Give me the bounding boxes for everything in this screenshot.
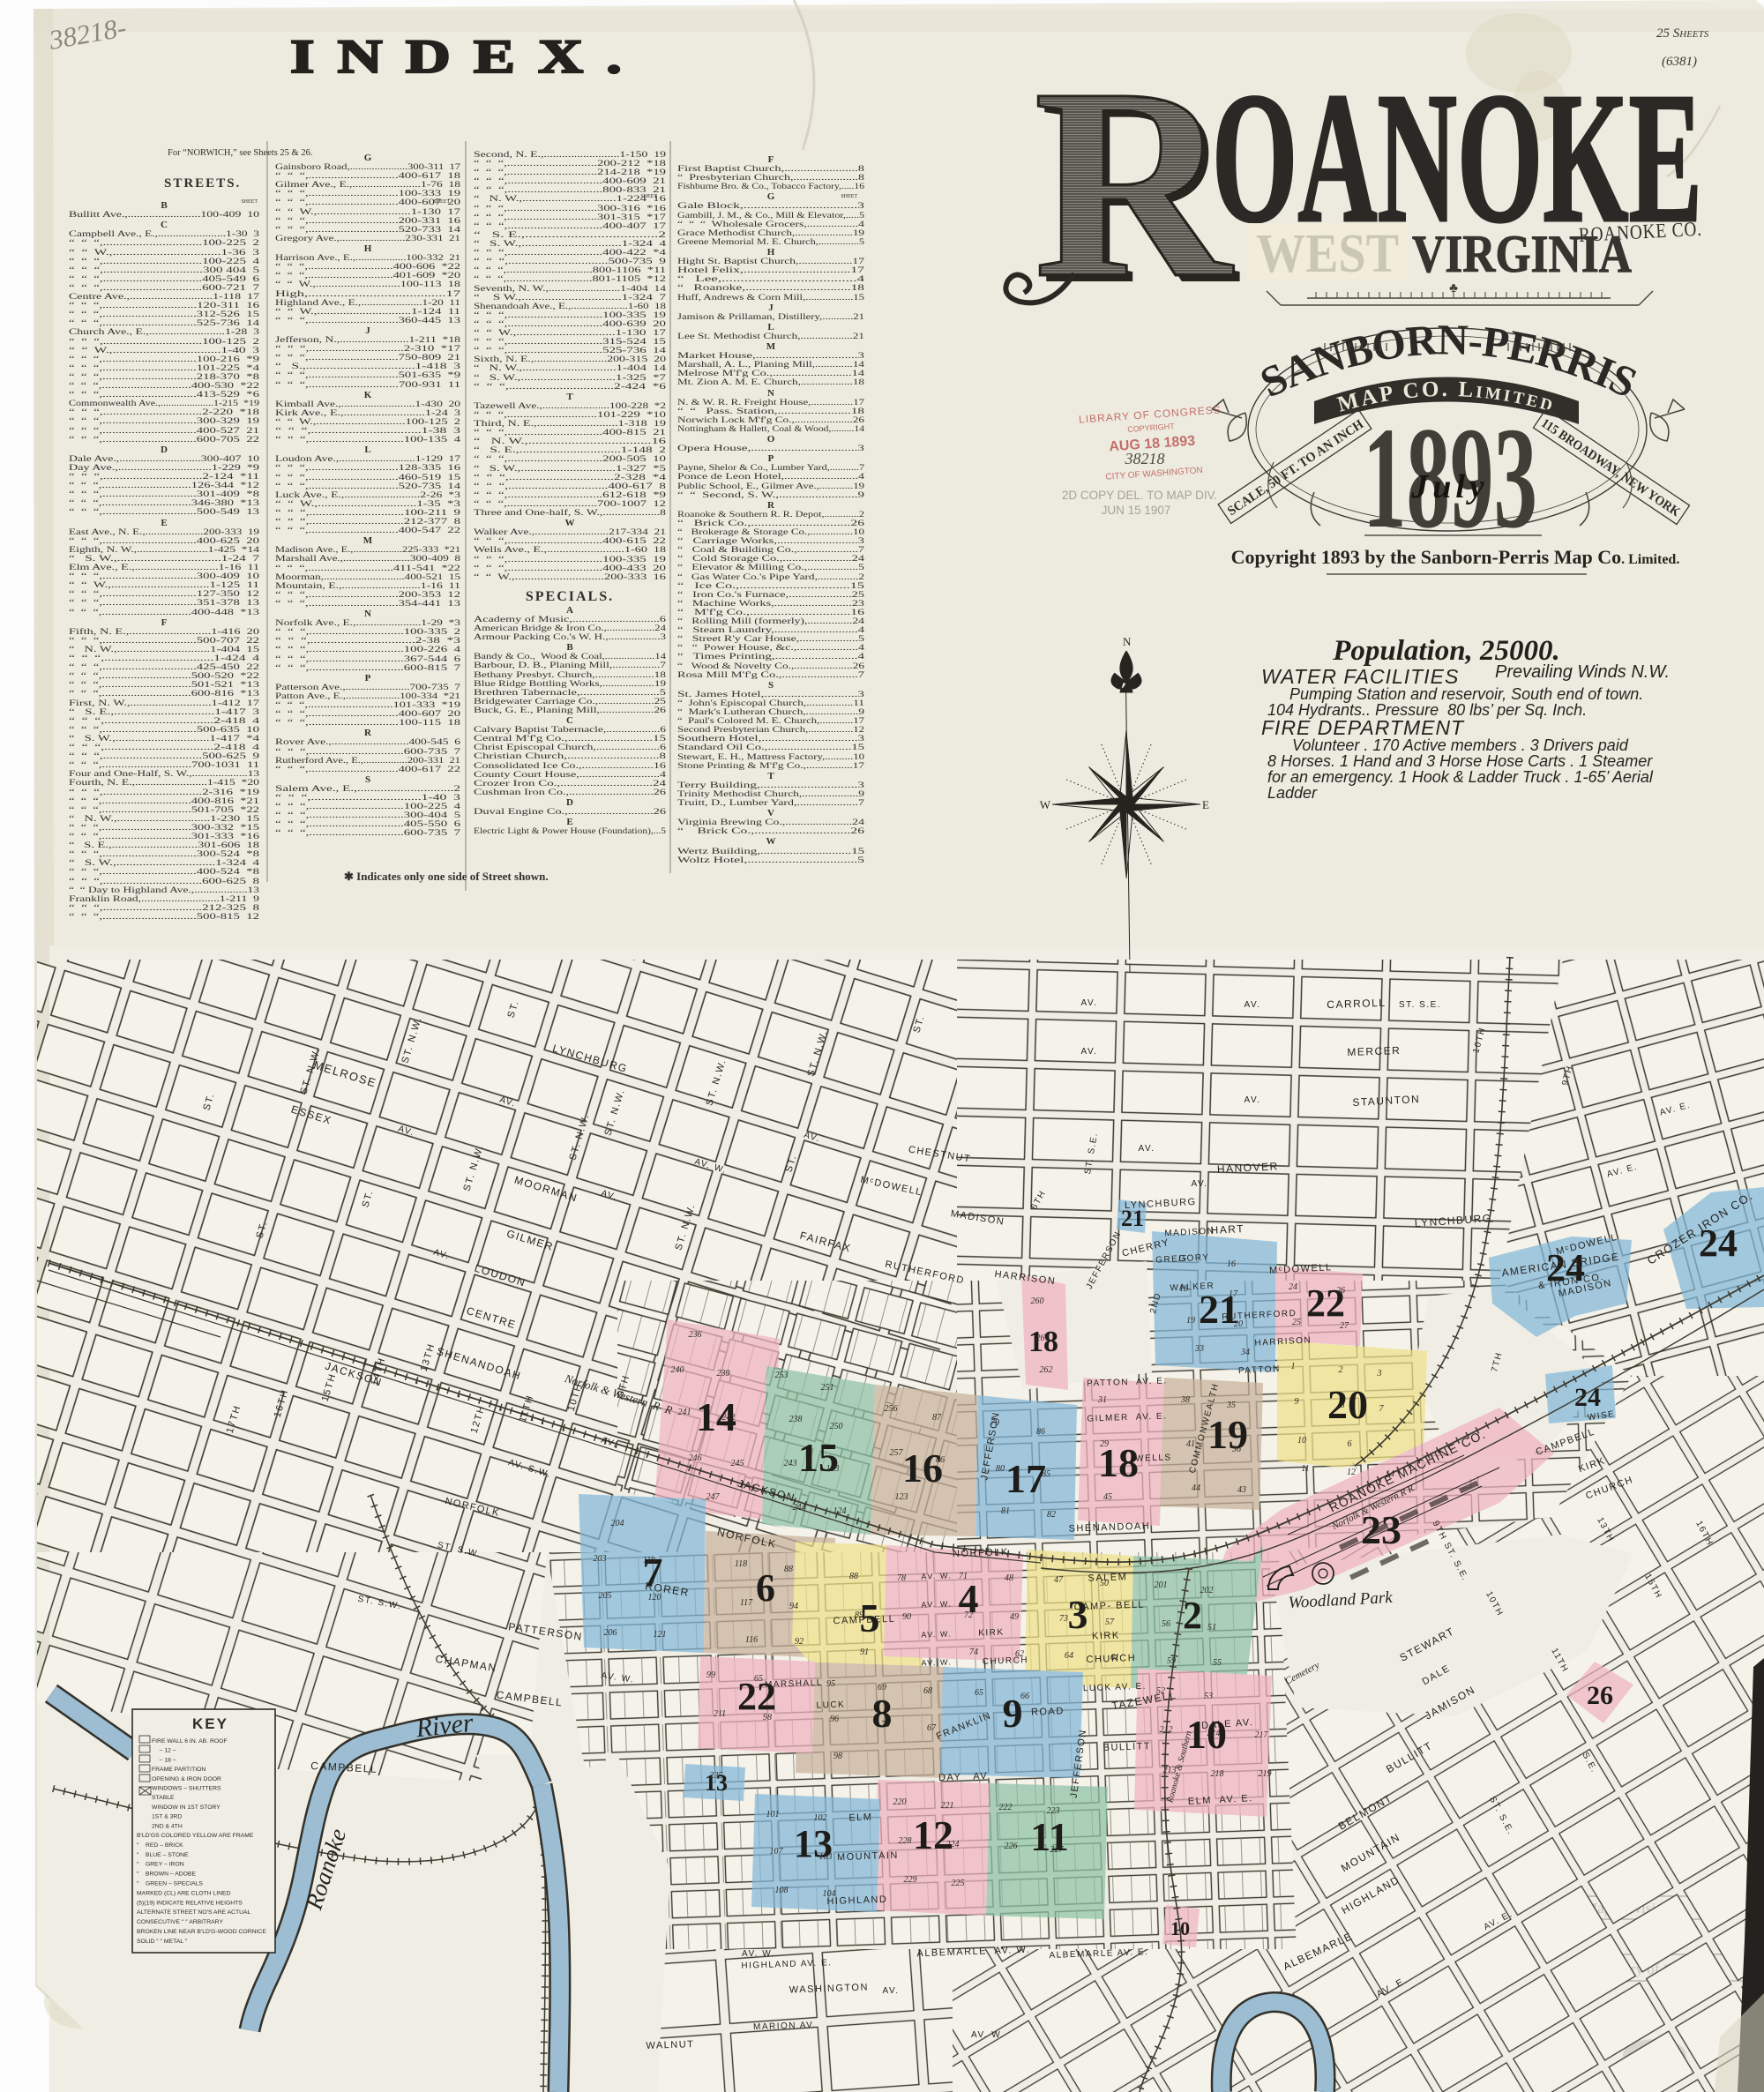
svg-text:256: 256 xyxy=(885,1404,898,1414)
svg-text:94: 94 xyxy=(789,1602,798,1611)
svg-text:“ “ “,......................: “ “ “,............................501-63… xyxy=(275,370,460,380)
svg-text:Nottingham & Hallett, Coal & W: Nottingham & Hallett, Coal & Wood,......… xyxy=(677,424,864,434)
svg-text:Stone Printing & M'f'g Co.,...: Stone Printing & M'f'g Co.,.............… xyxy=(677,761,864,771)
svg-text:July: July xyxy=(1410,468,1489,505)
svg-text:213: 213 xyxy=(1163,1766,1177,1775)
svg-text:“ “ “,......................: “ “ “,.............................600-8… xyxy=(275,663,460,673)
svg-text:240: 240 xyxy=(671,1365,684,1375)
svg-text:ST. S.E.: ST. S.E. xyxy=(1399,1000,1441,1010)
svg-text:AV. W.: AV. W. xyxy=(921,1599,952,1609)
svg-text:STABLE: STABLE xyxy=(152,1795,175,1801)
svg-text:214: 214 xyxy=(1207,1729,1221,1738)
svg-text:AV.: AV. xyxy=(1081,998,1098,1008)
svg-text:95: 95 xyxy=(826,1679,835,1689)
svg-text:59: 59 xyxy=(1167,1656,1176,1666)
svg-text:203: 203 xyxy=(594,1554,607,1564)
svg-text:MERCER: MERCER xyxy=(1347,1044,1401,1058)
svg-text:Gregory Ave.,.................: Gregory Ave.,.......................230-… xyxy=(275,234,460,243)
svg-text:66: 66 xyxy=(1020,1692,1029,1701)
svg-text:221: 221 xyxy=(941,1801,954,1811)
svg-text:14: 14 xyxy=(1386,1469,1394,1479)
svg-text:Woltz Hotel,..................: Woltz Hotel,............................… xyxy=(677,855,864,865)
svg-text:246: 246 xyxy=(689,1453,702,1463)
svg-text:206: 206 xyxy=(604,1628,617,1638)
svg-text:33: 33 xyxy=(1194,1344,1204,1354)
svg-text:AV. W.: AV. W. xyxy=(921,1571,952,1580)
svg-text:86: 86 xyxy=(1036,1427,1045,1437)
svg-text:9: 9 xyxy=(1295,1397,1299,1407)
svg-text:228: 228 xyxy=(899,1836,912,1846)
svg-text:FIRE WALL 6 IN. AB. ROOF: FIRE WALL 6 IN. AB. ROOF xyxy=(152,1738,228,1745)
svg-text:204: 204 xyxy=(611,1519,624,1528)
svg-text:″ BLUE – STONE: ″ BLUE – STONE xyxy=(137,1852,189,1858)
svg-text:52: 52 xyxy=(1156,1686,1165,1696)
svg-text:CAMPBELL: CAMPBELL xyxy=(833,1614,895,1626)
svg-text:117: 117 xyxy=(740,1598,753,1608)
svg-text:96: 96 xyxy=(830,1715,839,1724)
svg-text:118: 118 xyxy=(735,1559,747,1569)
svg-text:For “NORWICH,” see Sheets 25 &: For “NORWICH,” see Sheets 25 & 26. xyxy=(168,148,312,158)
svg-text:121: 121 xyxy=(654,1630,667,1640)
svg-text:HART: HART xyxy=(1210,1222,1245,1237)
svg-text:NORFOLK: NORFOLK xyxy=(953,1547,1009,1559)
svg-text:AV.: AV. xyxy=(1192,1179,1208,1189)
svg-text:AV.: AV. xyxy=(1081,1047,1098,1057)
svg-text:Electric Light & Power House (: Electric Light & Power House (Foundation… xyxy=(474,826,666,836)
svg-text:“ “ “,......................: “ “ “,...............................2-4… xyxy=(474,382,666,392)
svg-text:Pumping Station and reservoir,: Pumping Station and reservoir, South end… xyxy=(1289,685,1643,703)
svg-text:AV. W.: AV. W. xyxy=(742,1949,775,1959)
svg-text:AV. W.: AV. W. xyxy=(971,2030,1005,2040)
svg-text:“ “ “,......................: “ “ “,.............................600-7… xyxy=(275,828,460,838)
svg-text:51: 51 xyxy=(1207,1623,1216,1633)
svg-text:104: 104 xyxy=(823,1889,836,1899)
svg-text:86: 86 xyxy=(936,1455,945,1465)
svg-text:211: 211 xyxy=(714,1709,726,1719)
svg-text:“ Elevator & Milling Co.,...: “ Elevator & Milling Co.,...............… xyxy=(677,563,864,572)
svg-text:68: 68 xyxy=(923,1686,932,1696)
svg-text:20: 20 xyxy=(1234,1319,1243,1329)
svg-text:236: 236 xyxy=(689,1330,702,1340)
svg-text:“ “ “,......................: “ “ “,............................354-44… xyxy=(275,599,460,609)
svg-text:BULLITT: BULLITT xyxy=(1102,1741,1151,1753)
svg-text:8 Horses. 1 Hand and 3 Horse H: 8 Horses. 1 Hand and 3 Horse Hose Carts … xyxy=(1267,752,1653,770)
svg-text:36: 36 xyxy=(1231,1445,1241,1454)
svg-text:229: 229 xyxy=(904,1875,917,1885)
svg-text:AV.: AV. xyxy=(1139,1144,1155,1154)
svg-text:SHEET: SHEET xyxy=(640,194,657,199)
svg-text:CONSECUTIVE ″ ″ ARBITRARY: CONSECUTIVE ″ ″ ARBITRARY xyxy=(137,1919,223,1925)
svg-text:JUN 15 1907: JUN 15 1907 xyxy=(1102,504,1171,517)
svg-text:“ Times Printing,...........: “ Times Printing,.......................… xyxy=(677,652,864,661)
svg-text:70: 70 xyxy=(881,1720,890,1730)
svg-text:WINDOWS – SHUTTERS: WINDOWS – SHUTTERS xyxy=(152,1786,221,1792)
svg-text:MOUNTAIN: MOUNTAIN xyxy=(837,1850,899,1863)
svg-text:“ “ “,......................: “ “ “,.............................100-2… xyxy=(275,645,460,654)
svg-text:Armour Packing Co.'s W. H.,...: Armour Packing Co.'s W. H.,.............… xyxy=(474,632,666,642)
svg-text:119: 119 xyxy=(643,1556,655,1565)
svg-text:CARROLL: CARROLL xyxy=(1327,997,1387,1011)
svg-text:225: 225 xyxy=(952,1879,965,1888)
svg-text:212: 212 xyxy=(1160,1725,1173,1735)
svg-text:Truitt, D., Lumber Yard,......: Truitt, D., Lumber Yard,................… xyxy=(677,798,864,808)
svg-text:6: 6 xyxy=(1348,1439,1352,1449)
svg-text:3: 3 xyxy=(1068,1592,1088,1637)
svg-text:Prevailing Winds N.W.: Prevailing Winds N.W. xyxy=(1495,662,1670,682)
svg-text:38218: 38218 xyxy=(1125,450,1165,467)
svg-text:″ RED – BRICK: ″ RED – BRICK xyxy=(137,1842,183,1849)
svg-text:“ “ W.,.....................: “ “ W.,...........................100-11… xyxy=(275,280,460,289)
svg-text:MARSHALL: MARSHALL xyxy=(765,1678,823,1690)
svg-text:238: 238 xyxy=(789,1415,803,1424)
svg-text:“ “ “,......................: “ “ “,.............................500-8… xyxy=(69,912,259,922)
svg-text:Standard Oil Co.,.............: Standard Oil Co.,.......................… xyxy=(677,743,864,752)
svg-text:242: 242 xyxy=(722,1413,736,1423)
svg-text:35: 35 xyxy=(1226,1401,1236,1410)
svg-text:72: 72 xyxy=(964,1610,973,1620)
svg-text:26: 26 xyxy=(1587,1681,1613,1710)
svg-text:218: 218 xyxy=(1211,1769,1224,1779)
svg-text:♣: ♣ xyxy=(1449,281,1458,295)
svg-text:Opera House,..................: Opera House,............................… xyxy=(677,444,864,453)
svg-text:102: 102 xyxy=(814,1813,827,1823)
svg-text:“ “ “,......................: “ “ “,.............................400-5… xyxy=(69,867,259,877)
svg-text:“ “ “,......................: “ “ “,............................128-33… xyxy=(275,463,460,473)
svg-text:SPECIALS.: SPECIALS. xyxy=(526,589,614,604)
svg-text:WELLS: WELLS xyxy=(1135,1453,1172,1463)
svg-text:ALTERNATE STREET NO'S ARE ACTU: ALTERNATE STREET NO'S ARE ACTUAL xyxy=(137,1909,251,1916)
svg-text:81: 81 xyxy=(1001,1506,1010,1516)
svg-text:25 SHEETS: 25 SHEETS xyxy=(1656,26,1709,41)
svg-text:261: 261 xyxy=(1036,1334,1050,1343)
svg-text:123: 123 xyxy=(895,1492,908,1502)
svg-text:Duval Engine Co.,.............: Duval Engine Co.,.......................… xyxy=(474,807,666,817)
svg-text:15: 15 xyxy=(1177,1254,1186,1264)
svg-text:Church Ave., E.,..............: Church Ave., E.,........................… xyxy=(69,327,259,337)
svg-text:55: 55 xyxy=(1213,1658,1222,1668)
svg-text:2ND & 4TH: 2ND & 4TH xyxy=(152,1823,183,1829)
svg-text:“ “ “,......................: “ “ “,...........................801-110… xyxy=(474,274,666,284)
svg-text:“ “ “,......................: “ “ “,............................360-44… xyxy=(275,316,460,325)
svg-text:91: 91 xyxy=(860,1647,869,1657)
svg-text:16: 16 xyxy=(902,1446,943,1491)
svg-text:34: 34 xyxy=(1240,1348,1250,1357)
svg-text:10: 10 xyxy=(1297,1436,1306,1446)
svg-text:AV. W.: AV. W. xyxy=(921,1657,952,1667)
svg-text:223: 223 xyxy=(1047,1806,1060,1816)
svg-text:Lee St. Methodist Church,.....: Lee St. Methodist Church,...............… xyxy=(677,332,864,341)
svg-text:38: 38 xyxy=(1180,1395,1190,1405)
svg-text:260: 260 xyxy=(1031,1296,1044,1306)
svg-text:41: 41 xyxy=(1186,1439,1195,1449)
svg-text:Ponce de Leon Hotel,..........: Ponce de Leon Hotel,....................… xyxy=(677,472,864,482)
svg-text:245: 245 xyxy=(731,1459,744,1468)
svg-text:Jamison & Prillaman, Distiller: Jamison & Prillaman, Distillery,........… xyxy=(677,312,864,322)
svg-text:12: 12 xyxy=(1347,1468,1356,1477)
svg-text:241: 241 xyxy=(678,1408,691,1417)
svg-text:Wells Ave., E.,...............: Wells Ave., E.,.........................… xyxy=(474,545,666,555)
svg-text:235: 235 xyxy=(710,1771,723,1781)
svg-text:ROAD: ROAD xyxy=(1031,1706,1065,1717)
svg-text:“ “ “,......................: “ “ “,............................400-44… xyxy=(69,608,259,617)
svg-text:219: 219 xyxy=(1259,1769,1272,1779)
svg-text:71: 71 xyxy=(959,1572,968,1581)
svg-text:3: 3 xyxy=(1377,1369,1382,1378)
svg-text:VIRGINIA: VIRGINIA xyxy=(1412,225,1632,283)
svg-text:99: 99 xyxy=(706,1670,715,1680)
svg-text:Huff, Andrews & Corn Mill,....: Huff, Andrews & Corn Mill,..............… xyxy=(677,293,864,303)
svg-text:98: 98 xyxy=(833,1752,842,1761)
svg-text:48: 48 xyxy=(1005,1573,1013,1583)
svg-text:SHEET: SHEET xyxy=(841,194,857,199)
svg-text:220: 220 xyxy=(893,1797,907,1807)
svg-text:88: 88 xyxy=(849,1572,858,1581)
svg-text:“ “ “,......................: “ “ “,.............................200-5… xyxy=(474,454,666,464)
svg-text:92: 92 xyxy=(795,1637,804,1647)
svg-text:2D COPY DEL. TO MAP DIV.: 2D COPY DEL. TO MAP DIV. xyxy=(1062,489,1217,502)
svg-text:19: 19 xyxy=(1186,1316,1195,1326)
svg-text:1ST & 3RD: 1ST & 3RD xyxy=(152,1814,182,1820)
svg-text:8: 8 xyxy=(1341,1401,1345,1410)
svg-text:43: 43 xyxy=(1237,1485,1246,1495)
svg-text:STREETS.: STREETS. xyxy=(164,176,241,191)
svg-text:SHEET: SHEET xyxy=(433,199,450,205)
svg-text:224: 224 xyxy=(946,1840,960,1849)
svg-text:″ GREY – IRON: ″ GREY – IRON xyxy=(137,1862,184,1868)
svg-text:Christian Church,.............: Christian Church,.......................… xyxy=(474,751,666,761)
svg-text:Fishburne Bro. & Co., Tobacco: Fishburne Bro. & Co., Tobacco Factory,..… xyxy=(677,182,864,191)
svg-text:6: 6 xyxy=(756,1566,775,1610)
svg-text:“ “ “,......................: “ “ “,............................400-61… xyxy=(275,765,460,774)
svg-text:103: 103 xyxy=(819,1852,833,1862)
svg-text:DAY AV.: DAY AV. xyxy=(938,1771,991,1783)
svg-text:Buck, G. E., Planing Mill,....: Buck, G. E., Planing Mill,..............… xyxy=(474,706,666,715)
svg-text:Marshall Ave.,................: Marshall Ave.,.......................300… xyxy=(275,554,460,564)
svg-text:WALNUT: WALNUT xyxy=(646,2039,694,2051)
svg-text:73: 73 xyxy=(1059,1614,1068,1624)
svg-text:Rosa Mill M'f'g Co.,..........: Rosa Mill M'f'g Co.,....................… xyxy=(677,670,864,680)
svg-text:56: 56 xyxy=(1162,1619,1170,1629)
svg-text:120: 120 xyxy=(648,1593,661,1603)
svg-text:River: River xyxy=(414,1708,475,1744)
svg-text:Bullitt Ave.,.................: Bullitt Ave.,........................100… xyxy=(69,210,259,220)
svg-text:N: N xyxy=(1123,635,1132,648)
svg-text:123: 123 xyxy=(826,1464,840,1474)
svg-text:AV.: AV. xyxy=(1245,1095,1261,1105)
svg-text:FRAME PARTITION: FRAME PARTITION xyxy=(152,1767,206,1773)
svg-text:65: 65 xyxy=(975,1688,983,1698)
svg-text:2: 2 xyxy=(1183,1594,1202,1637)
svg-text:217: 217 xyxy=(1255,1730,1269,1740)
svg-text:101: 101 xyxy=(766,1810,780,1819)
svg-text:253: 253 xyxy=(775,1371,789,1380)
svg-text:53: 53 xyxy=(1204,1692,1213,1701)
svg-text:“ “ Second, S. W.,..........: “ “ Second, S. W.,......................… xyxy=(677,490,864,500)
svg-text:for an emergency. 1 Hook & Lad: for an emergency. 1 Hook & Ladder Truck … xyxy=(1267,768,1654,786)
svg-text:45: 45 xyxy=(1103,1492,1112,1502)
svg-text:239: 239 xyxy=(717,1369,730,1378)
svg-text:BROKEN LINE NEAR B'LD'G-WOOD C: BROKEN LINE NEAR B'LD'G-WOOD CORNICE xyxy=(137,1929,266,1935)
svg-text:64: 64 xyxy=(1065,1651,1073,1661)
svg-text:87: 87 xyxy=(932,1413,942,1423)
svg-text:Gale Block,...................: Gale Block,.............................… xyxy=(677,201,864,211)
svg-text:2: 2 xyxy=(1339,1365,1343,1375)
svg-text:AV.: AV. xyxy=(883,1986,900,1996)
svg-text:26: 26 xyxy=(1336,1286,1345,1296)
svg-text:108: 108 xyxy=(775,1886,789,1895)
svg-text:KEY: KEY xyxy=(192,1715,228,1732)
svg-text:Greene Memorial M. E. Church,.: Greene Memorial M. E. Church,...........… xyxy=(677,237,864,247)
svg-text:202: 202 xyxy=(1200,1586,1214,1595)
svg-text:Fourth, N. E.,................: Fourth, N. E.,........................1-… xyxy=(69,778,259,788)
svg-text:AV.: AV. xyxy=(1245,1000,1261,1010)
svg-text:80: 80 xyxy=(996,1464,1005,1474)
svg-text:27: 27 xyxy=(1340,1321,1349,1331)
svg-text:88: 88 xyxy=(784,1565,793,1574)
svg-text:“ Brick Co.,...............: “ Brick Co.,............................… xyxy=(677,826,864,836)
svg-text:205: 205 xyxy=(599,1591,612,1601)
svg-text:INDEX.: INDEX. xyxy=(290,30,645,83)
svg-text:62: 62 xyxy=(1015,1649,1024,1659)
svg-text:25: 25 xyxy=(1292,1318,1301,1327)
svg-text:89: 89 xyxy=(855,1610,863,1620)
svg-text:“ “ “,......................: “ “ “,.............................300-3… xyxy=(69,416,259,426)
svg-text:50: 50 xyxy=(1100,1579,1109,1588)
svg-text:17: 17 xyxy=(1229,1289,1238,1299)
svg-text:HIGHLAND: HIGHLAND xyxy=(826,1894,887,1907)
svg-text:SOLID ″ ″ METAL ″: SOLID ″ ″ METAL ″ xyxy=(137,1939,188,1945)
svg-text:251: 251 xyxy=(821,1383,834,1393)
svg-text:Mt. Zion A. M. E. Church,.....: Mt. Zion A. M. E. Church,...............… xyxy=(677,377,864,387)
svg-text:E: E xyxy=(1202,798,1209,811)
svg-text:✱ Indicates only one side of S: ✱ Indicates only one side of Street show… xyxy=(344,870,549,883)
svg-text:“ “ W.,.....................: “ “ W.,............................200-3… xyxy=(474,572,666,582)
svg-text:Cushman Iron Co.,.............: Cushman Iron Co.,.......................… xyxy=(474,788,666,797)
svg-text:“ “ “,......................: “ “ “,............................600-81… xyxy=(69,689,259,699)
svg-text:“ “ “,......................: “ “ “,.............................600-7… xyxy=(69,435,259,445)
svg-text:243: 243 xyxy=(784,1459,797,1468)
svg-text:“ “ “,......................: “ “ “,............................400-54… xyxy=(275,526,460,535)
svg-text:17: 17 xyxy=(1005,1456,1046,1501)
svg-text:“ “ “,......................: “ “ “,..............................100-… xyxy=(69,238,259,248)
svg-text:Rover Ave.,...................: Rover Ave.,..........................400… xyxy=(275,737,460,747)
svg-text:Three and One-half, S. W.,....: Three and One-half, S. W.,..............… xyxy=(474,508,666,518)
svg-text:– 12 –: – 12 – xyxy=(152,1748,176,1754)
svg-text:67: 67 xyxy=(927,1723,937,1733)
svg-text:98: 98 xyxy=(763,1713,772,1722)
svg-text:KIRK: KIRK xyxy=(978,1627,1005,1638)
svg-text:19: 19 xyxy=(1207,1412,1248,1457)
svg-text:“ Roanoke,..................: “ Roanoke,..............................… xyxy=(677,283,864,293)
svg-text:29: 29 xyxy=(1100,1439,1109,1449)
svg-text:12: 12 xyxy=(913,1812,953,1857)
svg-text:116: 116 xyxy=(745,1635,758,1645)
svg-text:82: 82 xyxy=(1047,1510,1056,1520)
svg-text:44: 44 xyxy=(1192,1483,1200,1493)
svg-text:B'LD'GS COLORED YELLOW ARE FRA: B'LD'GS COLORED YELLOW ARE FRAME xyxy=(137,1833,254,1839)
svg-text:“ “ “,......................: “ “ “,.............................100-1… xyxy=(275,435,460,445)
svg-text:20: 20 xyxy=(1327,1382,1368,1427)
svg-text:18: 18 xyxy=(1179,1284,1188,1294)
svg-text:65: 65 xyxy=(754,1674,763,1684)
svg-text:74: 74 xyxy=(969,1647,978,1657)
svg-text:250: 250 xyxy=(830,1422,843,1431)
svg-text:“ “ “,......................: “ “ “,............................100-11… xyxy=(275,718,460,728)
svg-text:“ “ “,......................: “ “ “,.............................500-5… xyxy=(69,507,259,517)
svg-text:11: 11 xyxy=(1301,1464,1309,1474)
svg-text:AV. W.: AV. W. xyxy=(921,1629,952,1639)
svg-text:227: 227 xyxy=(1050,1845,1065,1855)
svg-text:ELM: ELM xyxy=(848,1812,873,1824)
svg-text:″ BROWN – ADOBE: ″ BROWN – ADOBE xyxy=(137,1872,196,1878)
svg-text:49: 49 xyxy=(1010,1612,1019,1622)
svg-text:124: 124 xyxy=(833,1506,847,1516)
svg-text:247: 247 xyxy=(706,1492,721,1502)
svg-text:24: 24 xyxy=(1289,1282,1297,1292)
svg-text:262: 262 xyxy=(1040,1365,1053,1375)
svg-text:90: 90 xyxy=(902,1612,911,1622)
svg-text:79: 79 xyxy=(990,1418,999,1428)
svg-text:– 18 –: – 18 – xyxy=(152,1757,176,1763)
svg-text:LUCK: LUCK xyxy=(816,1700,845,1710)
svg-text:57: 57 xyxy=(1105,1618,1115,1627)
svg-text:“ “ “,......................: “ “ “,............................700-93… xyxy=(275,380,460,390)
svg-text:Ladder: Ladder xyxy=(1267,784,1318,802)
svg-text:226: 226 xyxy=(1005,1842,1018,1851)
svg-text:(5)(19) INDICATE RELATIVE HEIG: (5)(19) INDICATE RELATIVE HEIGHTS xyxy=(137,1900,243,1906)
svg-text:16: 16 xyxy=(1227,1259,1236,1269)
svg-text:78: 78 xyxy=(897,1573,906,1583)
svg-text:244: 244 xyxy=(793,1503,806,1513)
svg-text:61: 61 xyxy=(1110,1653,1119,1662)
svg-text:KIRK: KIRK xyxy=(1092,1630,1120,1641)
svg-text:1: 1 xyxy=(1291,1362,1296,1371)
svg-text:WINDOW IN 1ST STORY: WINDOW IN 1ST STORY xyxy=(152,1804,220,1811)
svg-text:“ N. W.,....................: “ N. W.,.............................1-2… xyxy=(474,194,666,204)
svg-text:201: 201 xyxy=(1155,1580,1168,1590)
svg-text:W: W xyxy=(766,836,776,847)
svg-text:257: 257 xyxy=(890,1448,904,1458)
svg-text:222: 222 xyxy=(999,1803,1013,1812)
svg-text:“ “ “,......................: “ “ “,.............................351-3… xyxy=(69,598,259,608)
svg-text:W: W xyxy=(1040,798,1051,811)
svg-text:Volunteer . 170 Active members: Volunteer . 170 Active members . 3 Drive… xyxy=(1292,736,1629,754)
svg-text:69: 69 xyxy=(878,1683,886,1692)
svg-text:OPENING & IRON DOOR: OPENING & IRON DOOR xyxy=(152,1776,221,1782)
svg-text:“ N. W.,....................: “ N. W.,.............................1-4… xyxy=(474,363,666,373)
svg-text:WEST: WEST xyxy=(1256,224,1399,284)
svg-text:Barbour, D. B., Planing Mill,.: Barbour, D. B., Planing Mill,...........… xyxy=(474,661,666,670)
svg-text:SHEET: SHEET xyxy=(241,199,258,205)
svg-text:107: 107 xyxy=(770,1847,784,1857)
svg-text:85: 85 xyxy=(1042,1469,1050,1479)
svg-text:31: 31 xyxy=(1097,1395,1107,1405)
svg-text:MARKED (CL) ARE CLOTH LINED: MARKED (CL) ARE CLOTH LINED xyxy=(137,1890,231,1896)
svg-text:47: 47 xyxy=(1054,1575,1064,1585)
svg-text:Copyright 1893 by the Sanborn-: Copyright 1893 by the Sanborn-Perris Map… xyxy=(1231,546,1680,568)
svg-text:″ GREEN – SPECIALS: ″ GREEN – SPECIALS xyxy=(137,1881,203,1887)
